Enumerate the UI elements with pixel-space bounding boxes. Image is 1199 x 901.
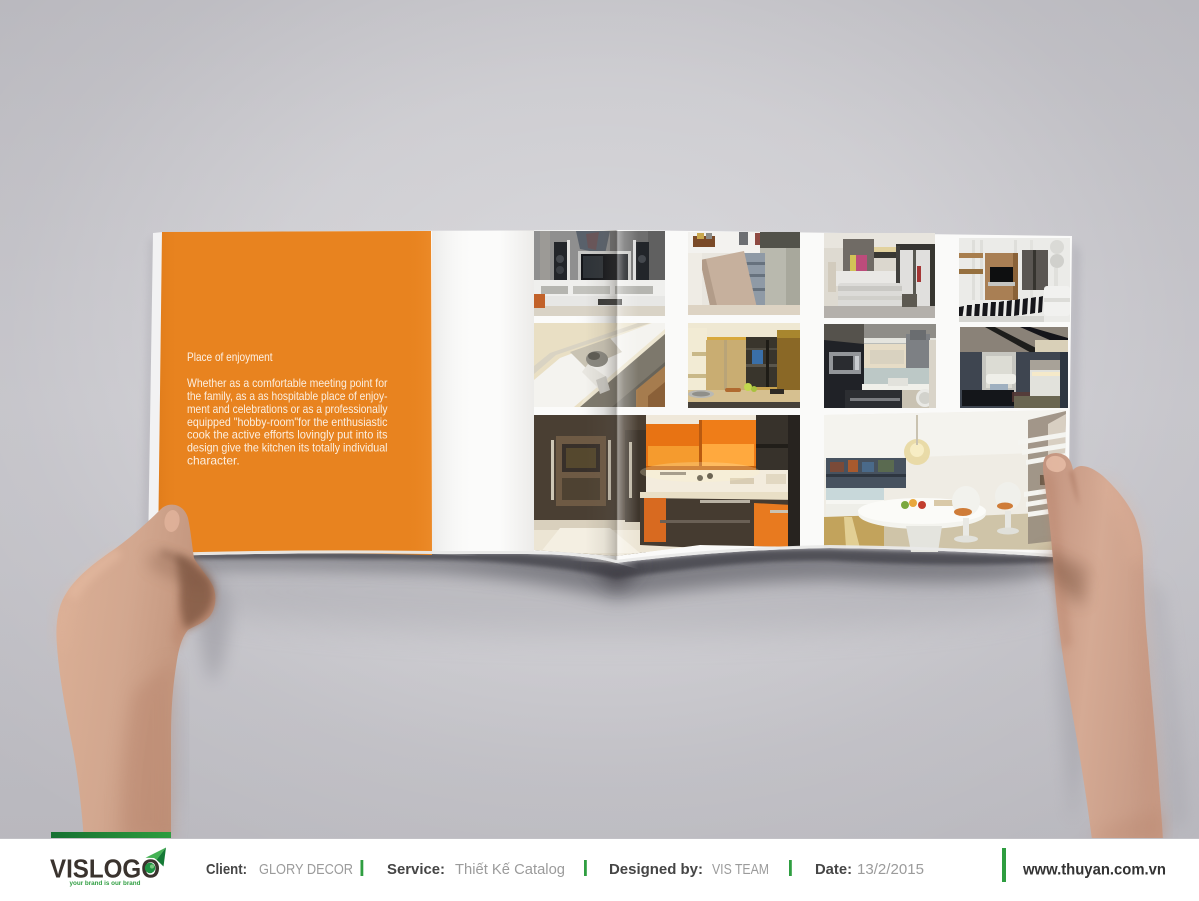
svg-text:VISLOGO: VISLOGO <box>50 854 160 884</box>
svg-text:the family, as a as hospitabl: the family, as a as hospitable place of … <box>187 389 388 403</box>
svg-text:your brand is our brand: your brand is our brand <box>70 880 141 887</box>
svg-text:cook the active efforts loving: cook the active efforts lovingly put int… <box>187 428 388 442</box>
svg-text:character.: character. <box>187 454 240 468</box>
svg-text:Whether as a comfortable meeti: Whether as a comfortable meeting point f… <box>187 376 388 390</box>
svg-text:design give the kitchen its to: design give the kitchen its totally indi… <box>187 441 388 455</box>
svg-text:Thiết Kế Catalog: Thiết Kế Catalog <box>455 861 565 878</box>
svg-text:Date:: Date: <box>815 861 852 878</box>
svg-text:13/2/2015: 13/2/2015 <box>857 861 924 878</box>
svg-text:Client:: Client: <box>206 861 247 878</box>
svg-text:Designed by:: Designed by: <box>609 861 703 878</box>
svg-text:Place of enjoyment: Place of enjoyment <box>187 350 273 364</box>
svg-text:Service:: Service: <box>387 861 445 878</box>
svg-text:GLORY DECOR: GLORY DECOR <box>259 861 353 878</box>
svg-text:equipped "hobby-room"for the e: equipped "hobby-room"for the enthusiasti… <box>187 415 388 429</box>
svg-text:www.thuyan.com.vn: www.thuyan.com.vn <box>1022 862 1166 879</box>
svg-text:VIS TEAM: VIS TEAM <box>712 861 769 878</box>
